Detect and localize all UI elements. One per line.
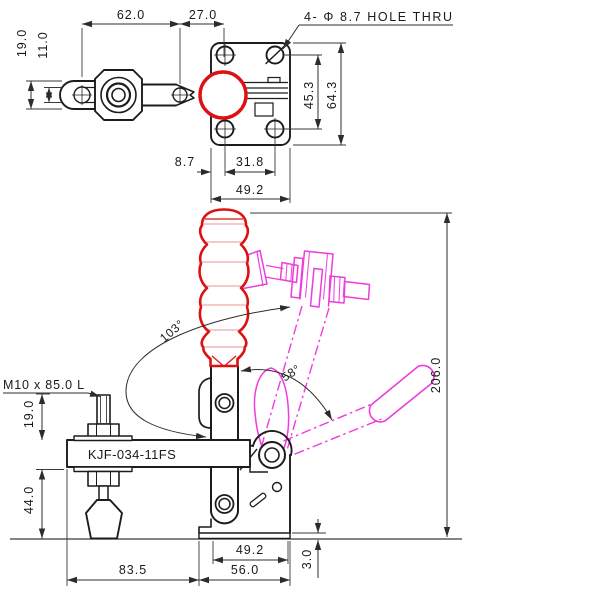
base-foot [199,533,290,539]
spindle-shaft [99,486,108,500]
dim-hole-spacing-h: 31.8 [236,155,264,169]
dim-spindle-height: 19.0 [22,400,36,428]
top-view: 62.0 27.0 19.0 11.0 45.3 64.3 4- Φ 8.7 H… [15,8,454,203]
dim-bar-reach: 83.5 [119,563,147,577]
handle-closed [200,210,249,367]
spindle-note: M10 x 85.0 L [3,378,85,392]
dim-plate-height: 64.3 [325,81,339,109]
dim-total-height: 206.0 [429,357,443,393]
lever-pin-lower [216,495,234,513]
phantom-open-position [230,251,434,464]
top-view-clamp-arm [60,70,194,120]
dim-bar-open-angle: 103° [157,317,187,345]
washer-upper [74,436,132,441]
hole-note-leader [283,25,299,49]
spindle-assembly [74,395,132,539]
dim-foot-width: 56.0 [231,563,259,577]
drawing-canvas: 62.0 27.0 19.0 11.0 45.3 64.3 4- Φ 8.7 H… [0,0,600,592]
lever-pin-upper [216,394,234,412]
technical-drawing-toggle-clamp: 62.0 27.0 19.0 11.0 45.3 64.3 4- Φ 8.7 H… [0,0,600,592]
phantom-spindle-rod [344,282,370,300]
phantom-bar-end [300,251,333,306]
dim-base-width: 49.2 [236,543,264,557]
phantom-handle-grip [369,365,434,421]
lever-hook-flange [199,378,211,428]
rubber-tip [86,500,122,539]
dim-edge-to-hole: 8.7 [175,155,195,169]
dim-bar-to-base: 44.0 [22,486,36,514]
pivot-boss [259,442,285,468]
dim-arm-height: 19.0 [15,29,29,57]
front-view: KJF-034-11FS [3,210,462,587]
spindle-nut-lower [88,472,119,487]
dim-base-thickness: 3.0 [300,549,314,569]
model-label: KJF-034-11FS [88,447,176,462]
dim-arm-span: 62.0 [117,8,145,22]
hole-note: 4- Φ 8.7 HOLE THRU [304,10,454,24]
dim-slot-height: 11.0 [36,31,50,58]
spindle-note-group: M10 x 85.0 L [3,378,100,397]
handle-top-circle [200,72,246,118]
spindle-rod [97,395,110,424]
dim-hole-spacing-v: 45.3 [302,81,316,109]
handle-grip-outline [200,210,249,367]
dim-handle-offset: 27.0 [189,8,217,22]
body-small-hole [273,483,282,492]
body-slot [249,492,266,507]
dim-plate-width-top: 49.2 [236,183,264,197]
